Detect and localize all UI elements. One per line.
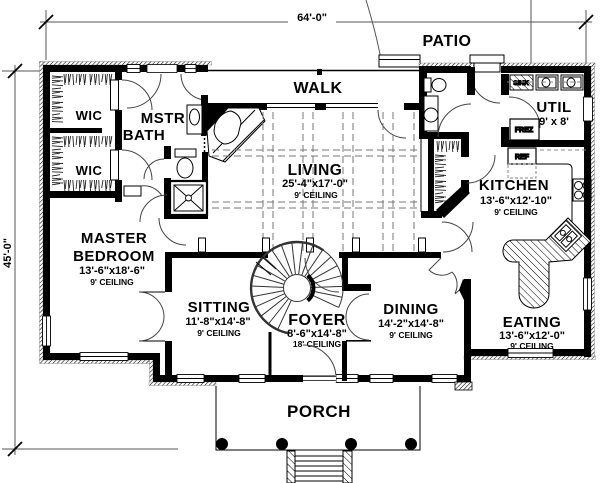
svg-text:WIC: WIC	[76, 108, 103, 123]
svg-text:9' CEILING: 9' CEILING	[294, 190, 338, 200]
svg-text:SITTING: SITTING	[188, 299, 251, 316]
svg-text:DINING: DINING	[383, 301, 439, 318]
svg-text:13'-6"x18'-6": 13'-6"x18'-6"	[79, 265, 145, 277]
svg-text:FOYER: FOYER	[288, 312, 346, 329]
svg-text:WIC: WIC	[76, 163, 103, 178]
svg-text:PORCH: PORCH	[287, 402, 351, 421]
svg-text:45'-0": 45'-0"	[2, 238, 14, 268]
svg-text:9' CEILING: 9' CEILING	[197, 328, 241, 338]
svg-text:BATH: BATH	[123, 127, 166, 144]
svg-text:25'-4"x17'-0": 25'-4"x17'-0"	[282, 178, 348, 190]
svg-text:9' CEILING: 9' CEILING	[90, 277, 134, 287]
svg-text:PATIO: PATIO	[422, 33, 471, 50]
svg-text:FREZ: FREZ	[515, 127, 534, 134]
svg-text:11'-8"x14'-8": 11'-8"x14'-8"	[185, 316, 250, 328]
svg-text:14'-2"x14'-8": 14'-2"x14'-8"	[378, 318, 444, 330]
svg-text:KITCHEN: KITCHEN	[479, 177, 549, 194]
svg-text:9' x 8': 9' x 8'	[539, 116, 569, 128]
svg-text:MSTR: MSTR	[141, 110, 186, 127]
svg-text:UTIL: UTIL	[536, 99, 571, 116]
svg-text:WALK: WALK	[293, 80, 342, 97]
svg-text:9' CEILING: 9' CEILING	[510, 341, 554, 351]
svg-text:BEDROOM: BEDROOM	[73, 248, 155, 265]
svg-text:18' CEILING: 18' CEILING	[293, 339, 342, 349]
svg-text:MASTER: MASTER	[81, 230, 147, 247]
svg-text:9' CEILING: 9' CEILING	[494, 207, 538, 217]
svg-text:EATING: EATING	[503, 314, 562, 331]
svg-text:13'-6"x12'-10": 13'-6"x12'-10"	[480, 195, 552, 207]
svg-text:64'-0": 64'-0"	[297, 12, 327, 24]
svg-text:REF: REF	[515, 154, 530, 161]
svg-text:LIVING: LIVING	[288, 162, 343, 179]
svg-text:SINK: SINK	[513, 80, 529, 87]
svg-text:9' CEILING: 9' CEILING	[389, 330, 433, 340]
